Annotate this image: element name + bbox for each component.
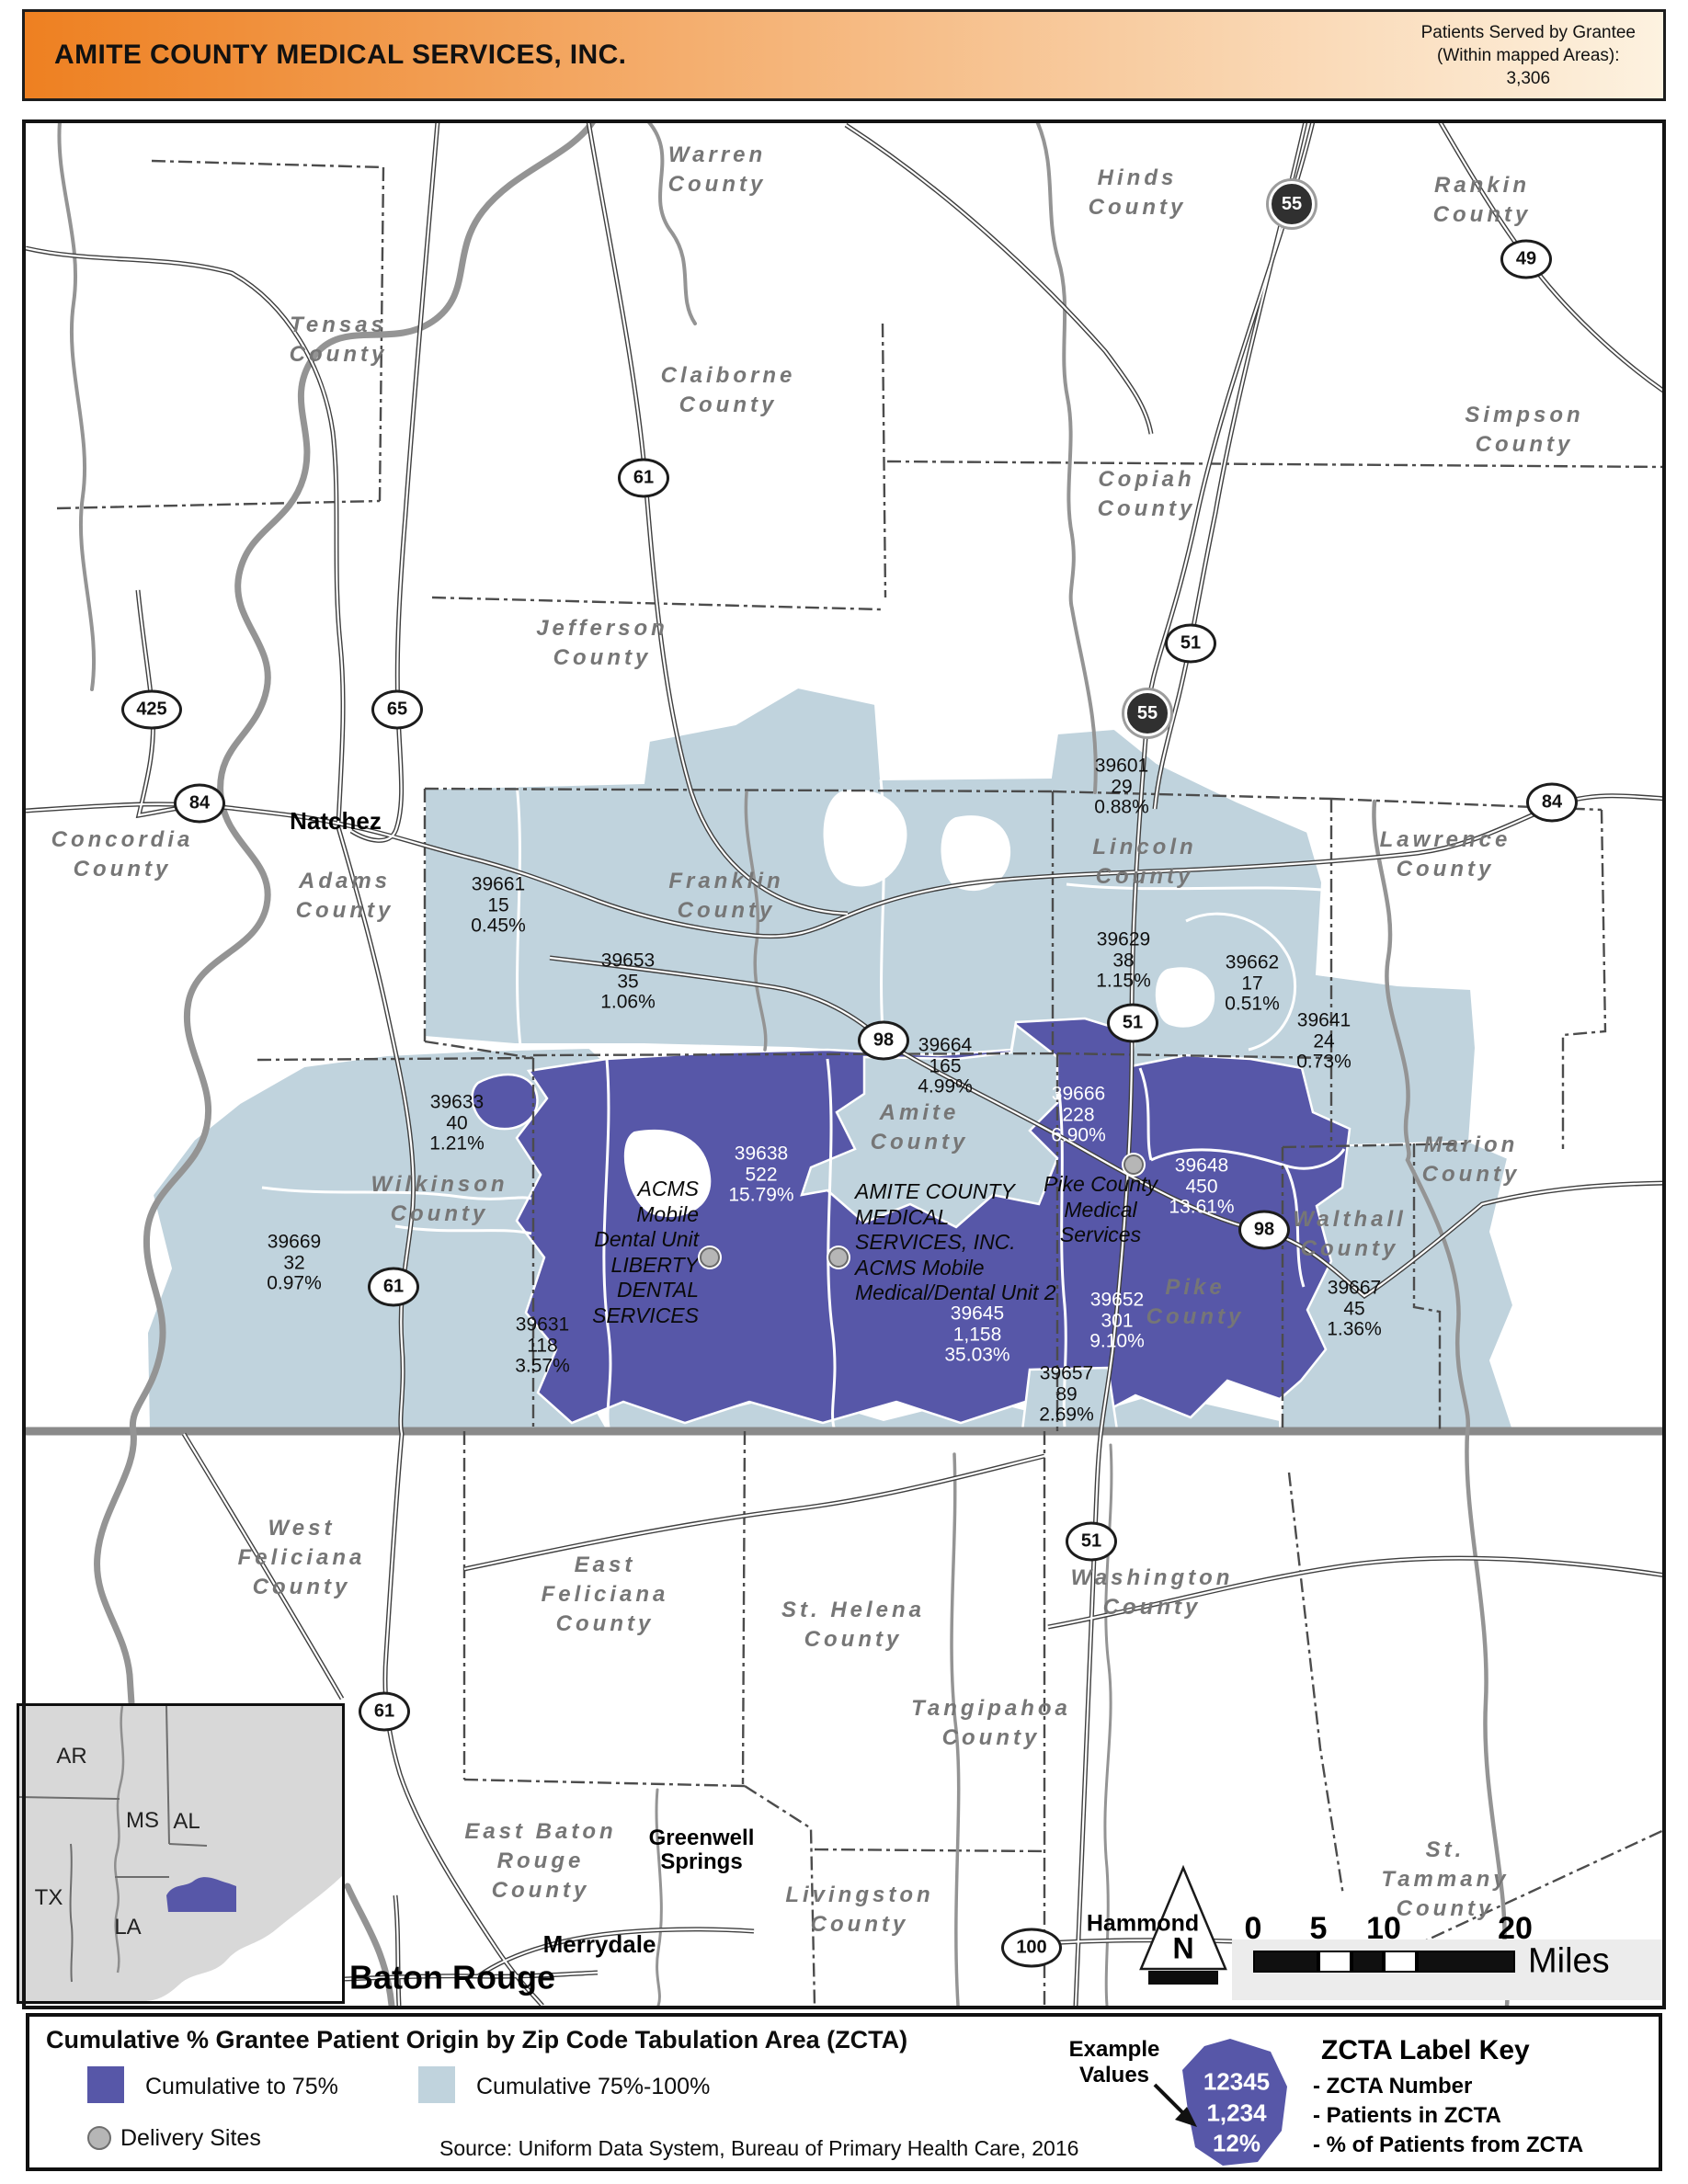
header-bar: AMITE COUNTY MEDICAL SERVICES, INC. Pati… (22, 9, 1666, 101)
county-label-warren: Warren County (668, 141, 767, 199)
delivery-site-label-2: Pike County Medical Services (1044, 1172, 1158, 1248)
example-percent: 12% (1213, 2130, 1260, 2158)
road-fill-5 (351, 121, 438, 840)
zcta-label-39638: 39638 522 15.79% (728, 1143, 793, 1206)
zcta-label-39661: 39661 15 0.45% (471, 874, 526, 937)
road-casing-5 (351, 121, 438, 840)
inset-state-ar: AR (56, 1744, 86, 1769)
us-route-shield-84-6: 84 (1526, 783, 1578, 823)
county-label-tangipahoa: Tangipahoa County (911, 1694, 1071, 1753)
scale-segment-2 (1352, 1951, 1384, 1973)
zcta-label-39641: 39641 24 0.73% (1296, 1010, 1352, 1073)
us-route-shield-51-4: 51 (1165, 624, 1216, 664)
road-fill-7 (1440, 121, 1666, 392)
white-pocket-3 (1157, 968, 1214, 1027)
grantee-title: AMITE COUNTY MEDICAL SERVICES, INC. (54, 40, 626, 71)
river-9 (656, 1790, 661, 2006)
county-border-4 (883, 324, 885, 597)
delivery-sites-label: Delivery Sites (120, 2125, 261, 2152)
legend-swatch-label-0: Cumulative to 75% (145, 2074, 338, 2100)
county-label-rankin: Rankin County (1433, 171, 1532, 230)
county-border-24 (464, 1780, 745, 1786)
county-label-hinds: Hinds County (1089, 164, 1187, 222)
county-label-livingston: Livingston County (785, 1881, 933, 1939)
delivery-site-dot-1 (828, 1247, 849, 1268)
inset-state-al: AL (173, 1809, 200, 1835)
city-label-merrydale: Merrydale (543, 1931, 656, 1957)
us-route-shield-84-3: 84 (174, 784, 225, 824)
river-4 (1037, 121, 1096, 792)
road-casing-7 (1440, 121, 1666, 392)
zcta-label-39631: 39631 118 3.57% (515, 1314, 570, 1377)
scale-tick-0: 0 (1245, 1911, 1262, 1947)
legend-swatch-label-1: Cumulative 75%-100% (476, 2074, 710, 2100)
zcta-label-key-title: ZCTA Label Key (1321, 2035, 1530, 2066)
county-label-pike: Pike County (1146, 1273, 1245, 1332)
legend-swatch-1 (418, 2066, 455, 2103)
zcta-label-39662: 39662 17 0.51% (1225, 952, 1280, 1015)
delivery-site-label-1: AMITE COUNTY MEDICAL SERVICES, INC. ACMS… (855, 1179, 1056, 1306)
county-border-5 (887, 461, 1666, 467)
county-label-east-baton: East Baton Rouge County (464, 1817, 616, 1905)
scale-tick-5: 5 (1310, 1911, 1328, 1947)
county-label-east: East Feliciana County (542, 1551, 669, 1639)
county-label-walthall: Walthall County (1293, 1205, 1407, 1264)
county-label-concordia: Concordia County (51, 825, 194, 884)
key-row-0: - ZCTA Number (1313, 2072, 1583, 2101)
inset-state-ms: MS (126, 1808, 159, 1834)
legend-swatch-0 (87, 2066, 124, 2103)
county-border-2 (57, 501, 380, 508)
county-border-28 (1289, 1473, 1343, 1895)
county-label-adams: Adams County (296, 867, 394, 926)
legend-title: Cumulative % Grantee Patient Origin by Z… (46, 2026, 907, 2054)
zcta-label-39657: 39657 89 2.69% (1039, 1363, 1094, 1426)
inset-state-la: LA (114, 1915, 141, 1940)
zcta-label-key-rows: - ZCTA Number- Patients in ZCTA- % of Pa… (1313, 2072, 1583, 2160)
interstate-shield-55-0: 55 (1269, 181, 1315, 227)
inset-locator-map: ARMSALTXLA (17, 1703, 345, 2004)
zcta-label-39633: 39633 40 1.21% (429, 1092, 485, 1155)
interstate-shield-55-1: 55 (1124, 690, 1170, 736)
county-label-amite: Amite County (871, 1098, 969, 1157)
zcta-label-39667: 39667 45 1.36% (1327, 1278, 1382, 1340)
county-border-26 (815, 1849, 1044, 1851)
us-route-shield-100-13: 100 (1001, 1928, 1062, 1968)
zcta-label-39669: 39669 32 0.97% (267, 1232, 322, 1294)
zcta-label-39601: 39601 29 0.88% (1094, 756, 1149, 818)
scale-tick-10: 10 (1366, 1911, 1401, 1947)
zcta-label-39652: 39652 301 9.10% (1089, 1290, 1145, 1352)
scale-segment-4 (1417, 1951, 1515, 1973)
county-label-st-helena: St. Helena County (781, 1596, 925, 1655)
county-label-tensas: Tensas County (290, 311, 388, 370)
delivery-site-dot-0 (700, 1247, 720, 1268)
zcta-label-39653: 39653 35 1.06% (600, 950, 656, 1013)
patients-served-block: Patients Served by Grantee (Within mappe… (1421, 21, 1636, 90)
delivery-sites-icon (87, 2126, 111, 2150)
north-arrow-base (1148, 1971, 1218, 1985)
county-label-washington: Washington County (1071, 1564, 1234, 1622)
patients-served-line1: Patients Served by Grantee (1421, 21, 1636, 44)
us-route-shield-65-0: 65 (371, 690, 423, 730)
scale-unit-label: Miles (1528, 1942, 1610, 1982)
county-border-22 (743, 1431, 745, 1784)
us-route-shield-49-5: 49 (1500, 240, 1552, 279)
county-label-lawrence: Lawrence County (1380, 825, 1511, 884)
patients-served-count: 3,306 (1421, 67, 1636, 90)
county-border-9 (1563, 810, 1605, 1149)
inset-state-tx: TX (35, 1885, 63, 1911)
river-3 (59, 121, 94, 689)
city-label-natchez: Natchez (290, 808, 382, 834)
city-label-greenwell-springs: Greenwell Springs (649, 1826, 755, 1874)
county-label-west: West Feliciana County (238, 1514, 366, 1602)
county-border-0 (152, 161, 383, 167)
zcta-label-39664: 39664 165 4.99% (918, 1035, 973, 1098)
us-route-shield-61-12: 61 (359, 1692, 410, 1732)
zcta-label-39648: 39648 450 13.61% (1169, 1155, 1234, 1218)
county-label-marion: Marion County (1422, 1131, 1521, 1189)
example-values-heading: Example Values (1069, 2037, 1160, 2088)
us-route-shield-51-11: 51 (1066, 1522, 1117, 1562)
city-label-baton-rouge: Baton Rouge (349, 1961, 555, 1996)
zcta-label-39645: 39645 1,158 35.03% (944, 1303, 1009, 1366)
key-row-2: - % of Patients from ZCTA (1313, 2131, 1583, 2160)
zcta-label-39629: 39629 38 1.15% (1096, 929, 1151, 992)
delivery-site-label-0: ACMS Mobile Dental Unit LIBERTY DENTAL S… (592, 1177, 699, 1328)
patients-served-line2: (Within mapped Areas): (1421, 44, 1636, 67)
scale-segment-0 (1253, 1951, 1318, 1973)
scale-segment-1 (1318, 1951, 1352, 1973)
us-route-shield-51-8: 51 (1107, 1004, 1158, 1043)
us-route-shield-98-9: 98 (1238, 1211, 1290, 1250)
source-citation: Source: Uniform Data System, Bureau of P… (439, 2136, 1078, 2161)
scale-segment-3 (1384, 1951, 1417, 1973)
us-route-shield-61-10: 61 (368, 1268, 419, 1307)
us-route-shield-98-7: 98 (858, 1021, 909, 1061)
county-label-jefferson: Jefferson County (536, 614, 668, 673)
us-route-shield-61-1: 61 (618, 459, 669, 498)
county-label-lincoln: Lincoln County (1092, 833, 1196, 892)
us-route-shield-425-2: 425 (121, 690, 182, 730)
county-label-copiah: Copiah County (1098, 465, 1196, 524)
example-patients: 1,234 (1206, 2099, 1266, 2128)
county-label-franklin: Franklin County (668, 867, 783, 926)
county-label-simpson: Simpson County (1465, 401, 1583, 460)
county-label-wilkinson: Wilkinson County (371, 1170, 508, 1229)
example-zcta-number: 12345 (1203, 2068, 1270, 2097)
county-label-claiborne: Claiborne County (661, 361, 796, 420)
north-arrow-label: N (1172, 1932, 1193, 1966)
zcta-label-39666: 39666 228 6.90% (1051, 1084, 1106, 1146)
delivery-site-dot-2 (1123, 1155, 1144, 1175)
key-row-1: - Patients in ZCTA (1313, 2101, 1583, 2131)
